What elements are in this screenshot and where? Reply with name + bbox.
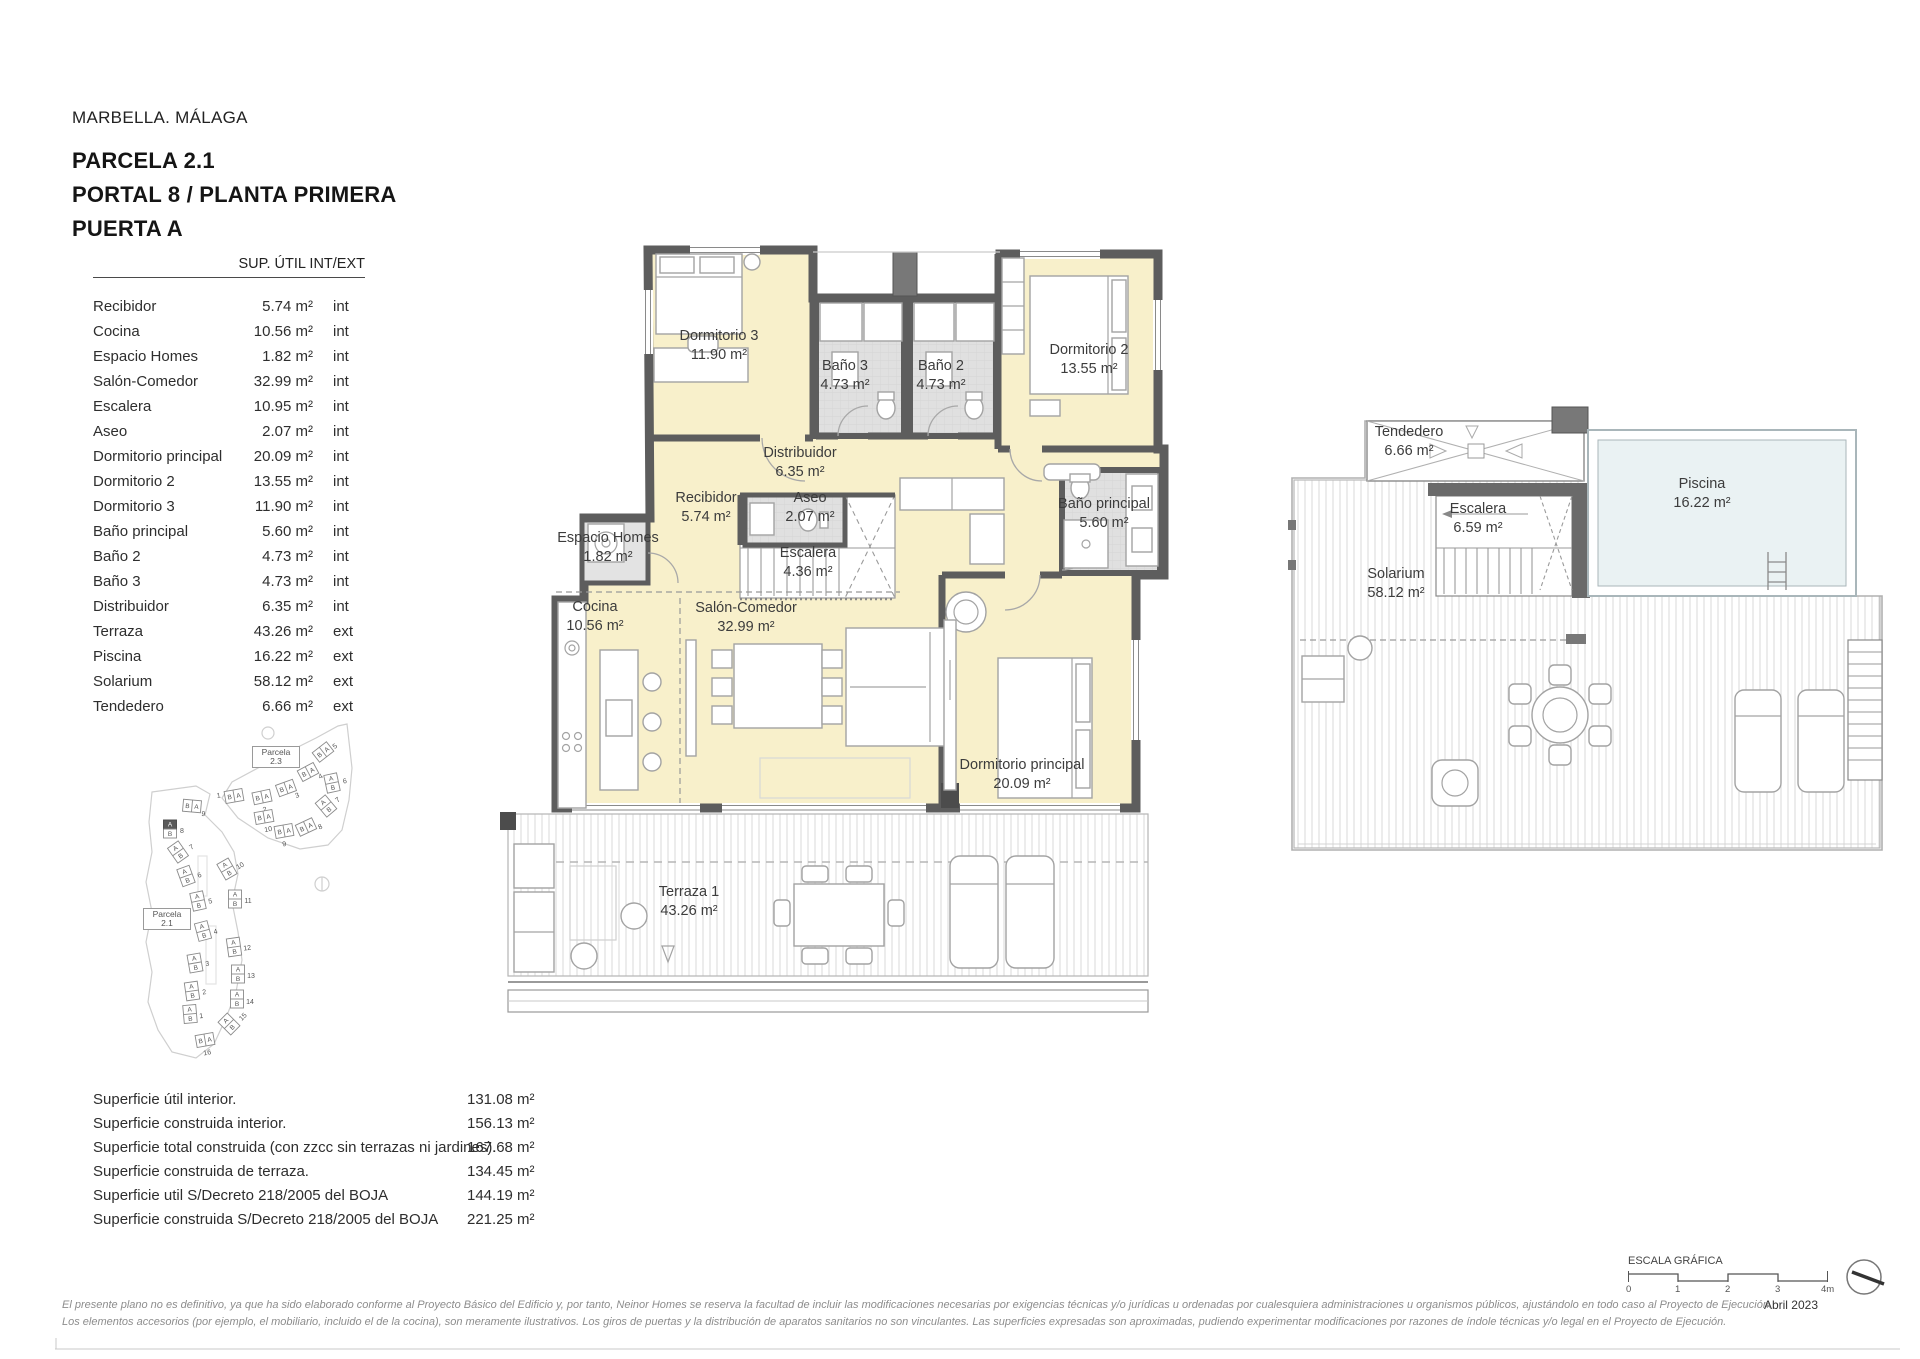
site-block: AB14 bbox=[231, 990, 254, 1008]
room-area: 20.09 m² bbox=[960, 775, 1085, 794]
svg-text:B: B bbox=[236, 976, 240, 983]
label-solarium: Solarium58.12 m² bbox=[1367, 565, 1424, 603]
room-area: 4.73 m² bbox=[916, 376, 965, 395]
site-block: AB6 bbox=[177, 862, 203, 886]
area-row: Solarium58.12 m²ext bbox=[93, 669, 365, 694]
side-steps bbox=[1848, 640, 1882, 780]
parcela-23-label: Parcela2.3 bbox=[252, 746, 300, 768]
svg-text:B: B bbox=[168, 831, 172, 838]
room-name: Baño 2 bbox=[916, 357, 965, 376]
svg-text:4: 4 bbox=[213, 928, 219, 936]
compass-icon bbox=[1847, 1260, 1884, 1294]
site-block: AB12 bbox=[226, 936, 252, 957]
svg-text:12: 12 bbox=[243, 945, 252, 953]
scale-tick: 1 bbox=[1675, 1284, 1680, 1295]
room-name: Piscina bbox=[1673, 475, 1730, 494]
area-row: Salón-Comedor32.99 m²int bbox=[93, 369, 365, 394]
room-name: Escalera bbox=[1450, 500, 1506, 519]
svg-text:2: 2 bbox=[202, 989, 207, 996]
area-row: Aseo2.07 m²int bbox=[93, 419, 365, 444]
room-area: 4.73 m² bbox=[820, 376, 869, 395]
site-plan-map: BA1 BA2 BA3 BA4 BA5 AB6 AB7 BA8 BA9 BA10… bbox=[146, 724, 352, 1058]
room-area: 43.26 m² bbox=[659, 902, 719, 921]
svg-text:A: A bbox=[235, 992, 240, 999]
site-block: AB13 bbox=[232, 965, 255, 983]
room-area: 4.36 m² bbox=[780, 563, 836, 582]
label-dormitorio2: Dormitorio 213.55 m² bbox=[1050, 341, 1129, 379]
svg-text:9: 9 bbox=[282, 841, 287, 849]
disclaimer-line1: El presente plano no es definitivo, ya q… bbox=[62, 1297, 1898, 1314]
scale-tick: 3 bbox=[1775, 1284, 1780, 1295]
svg-text:1: 1 bbox=[216, 792, 221, 800]
site-block: AB6 bbox=[324, 771, 349, 793]
room-name: Espacio Homes bbox=[557, 529, 659, 548]
area-row: Baño principal5.60 m²int bbox=[93, 519, 365, 544]
label-escalera: Escalera4.36 m² bbox=[780, 544, 836, 582]
room-name: Tendedero bbox=[1375, 423, 1444, 442]
summary-row: Superficie construida interior.156.13 m² bbox=[93, 1112, 535, 1136]
room-name: Solarium bbox=[1367, 565, 1424, 584]
room-area: 10.56 m² bbox=[566, 617, 623, 636]
room-name: Dormitorio principal bbox=[960, 756, 1085, 775]
svg-text:6: 6 bbox=[342, 778, 347, 786]
label-recibidor: Recibidor5.74 m² bbox=[675, 489, 736, 527]
room-area: 6.59 m² bbox=[1450, 519, 1506, 538]
upper-floor-plan bbox=[1288, 407, 1882, 850]
svg-text:9: 9 bbox=[201, 811, 206, 818]
room-area: 5.74 m² bbox=[675, 508, 736, 527]
portal-title: PORTAL 8 / PLANTA PRIMERA bbox=[72, 182, 396, 208]
site-block: BA9 bbox=[274, 824, 296, 850]
area-row: Baño 24.73 m²int bbox=[93, 544, 365, 569]
area-row: Tendedero6.66 m²ext bbox=[93, 694, 365, 719]
area-table-header: SUP. ÚTIL INT/EXT bbox=[93, 256, 365, 278]
area-row: Terraza43.26 m²ext bbox=[93, 619, 365, 644]
svg-text:10: 10 bbox=[235, 861, 245, 871]
vent-shaft bbox=[893, 252, 917, 296]
svg-text:B: B bbox=[233, 901, 237, 908]
room-area: 6.35 m² bbox=[763, 463, 836, 482]
pillar bbox=[1288, 520, 1296, 530]
label-escalera-upper: Escalera6.59 m² bbox=[1450, 500, 1506, 538]
label-aseo: Aseo2.07 m² bbox=[785, 489, 834, 527]
label-salon: Salón-Comedor32.99 m² bbox=[695, 599, 797, 637]
room-name: Baño principal bbox=[1058, 495, 1150, 514]
site-block: AB3 bbox=[187, 952, 210, 973]
scale-bar-graphic: 0 1 2 3 4m bbox=[1628, 1270, 1832, 1284]
scale-title: ESCALA GRÁFICA bbox=[1628, 1255, 1832, 1267]
room-name: Baño 3 bbox=[820, 357, 869, 376]
room-area: 58.12 m² bbox=[1367, 584, 1424, 603]
svg-text:1: 1 bbox=[199, 1013, 204, 1020]
room-area: 11.90 m² bbox=[680, 346, 759, 365]
label-dormitorio3: Dormitorio 311.90 m² bbox=[680, 327, 759, 365]
svg-text:B: B bbox=[185, 803, 190, 810]
site-block: BA1 bbox=[216, 789, 244, 805]
svg-text:11: 11 bbox=[244, 898, 251, 905]
summary-row: Superficie útil interior.131.08 m² bbox=[93, 1088, 535, 1112]
label-terraza: Terraza 143.26 m² bbox=[659, 883, 719, 921]
room-area: 32.99 m² bbox=[695, 618, 797, 637]
area-row: Escalera10.95 m²int bbox=[93, 394, 365, 419]
site-block: AB7 bbox=[315, 789, 343, 817]
area-row: Cocina10.56 m²int bbox=[93, 319, 365, 344]
svg-text:5: 5 bbox=[208, 898, 213, 906]
area-row: Recibidor5.74 m²int bbox=[93, 294, 365, 319]
svg-text:4: 4 bbox=[318, 773, 325, 781]
label-cocina: Cocina10.56 m² bbox=[566, 598, 623, 636]
floorplan-sheet: BA1 BA2 BA3 BA4 BA5 AB6 AB7 BA8 BA9 BA10… bbox=[0, 0, 1920, 1359]
site-block: AB1 bbox=[183, 1004, 204, 1024]
site-block: AB2 bbox=[184, 980, 207, 1001]
label-bano3: Baño 34.73 m² bbox=[820, 357, 869, 395]
pool bbox=[1588, 430, 1856, 596]
room-area: 2.07 m² bbox=[785, 508, 834, 527]
summary-row: Superficie util S/Decreto 218/2005 del B… bbox=[93, 1184, 535, 1208]
room-name: Distribuidor bbox=[763, 444, 836, 463]
svg-text:B: B bbox=[235, 1001, 239, 1008]
surface-summary: Superficie útil interior.131.08 m² Super… bbox=[93, 1088, 535, 1232]
svg-text:A: A bbox=[168, 822, 173, 829]
pillar bbox=[1288, 560, 1296, 570]
site-block: AB7 bbox=[168, 835, 197, 863]
area-row: Dormitorio principal20.09 m²int bbox=[93, 444, 365, 469]
scale-tick: 4m bbox=[1821, 1284, 1834, 1295]
svg-text:7: 7 bbox=[334, 796, 342, 804]
label-dormitorio-principal: Dormitorio principal20.09 m² bbox=[960, 756, 1085, 794]
label-tendedero: Tendedero6.66 m² bbox=[1375, 423, 1444, 461]
room-area: 13.55 m² bbox=[1050, 360, 1129, 379]
svg-text:3: 3 bbox=[205, 961, 210, 969]
label-piscina: Piscina16.22 m² bbox=[1673, 475, 1730, 513]
area-row: Baño 34.73 m²int bbox=[93, 569, 365, 594]
summary-row: Superficie construida de terraza.134.45 … bbox=[93, 1160, 535, 1184]
area-row: Dormitorio 311.90 m²int bbox=[93, 494, 365, 519]
site-block: BA8 bbox=[295, 815, 324, 840]
svg-text:16: 16 bbox=[203, 1049, 212, 1057]
site-block: BA4 bbox=[297, 762, 324, 789]
room-name: Dormitorio 3 bbox=[680, 327, 759, 346]
area-row: Distribuidor6.35 m²int bbox=[93, 594, 365, 619]
svg-text:A: A bbox=[233, 892, 238, 899]
room-name: Escalera bbox=[780, 544, 836, 563]
pillar bbox=[500, 812, 516, 830]
room-name: Salón-Comedor bbox=[695, 599, 797, 618]
room-name: Terraza 1 bbox=[659, 883, 719, 902]
scale-tick: 0 bbox=[1626, 1284, 1631, 1295]
site-block: BA9 bbox=[182, 799, 206, 818]
site-block: AB4 bbox=[194, 919, 219, 942]
area-row: Piscina16.22 m²ext bbox=[93, 644, 365, 669]
site-block-highlighted: AB8 bbox=[164, 820, 185, 838]
svg-text:7: 7 bbox=[188, 844, 195, 852]
room-name: Aseo bbox=[785, 489, 834, 508]
room-name: Cocina bbox=[566, 598, 623, 617]
svg-text:A: A bbox=[236, 967, 241, 974]
site-block: AB10 bbox=[217, 853, 246, 880]
site-block: AB5 bbox=[190, 889, 214, 911]
area-table: SUP. ÚTIL INT/EXT Recibidor5.74 m²int Co… bbox=[93, 256, 365, 719]
label-espacio-homes: Espacio Homes1.82 m² bbox=[557, 529, 659, 567]
site-block: AB11 bbox=[229, 890, 252, 908]
svg-text:14: 14 bbox=[246, 999, 254, 1006]
site-block: BA3 bbox=[275, 779, 300, 805]
svg-text:8: 8 bbox=[180, 828, 184, 835]
area-row: Espacio Homes1.82 m²int bbox=[93, 344, 365, 369]
room-area: 1.82 m² bbox=[557, 548, 659, 567]
site-block: BA5 bbox=[312, 738, 339, 763]
svg-text:13: 13 bbox=[247, 973, 255, 980]
area-row: Dormitorio 213.55 m²int bbox=[93, 469, 365, 494]
svg-text:B: B bbox=[188, 1016, 193, 1023]
disclaimer-line2: Los elementos accesorios (por ejemplo, e… bbox=[62, 1314, 1898, 1331]
parcela-21-label: Parcela2.1 bbox=[143, 908, 191, 930]
summary-row: Superficie total construida (con zzcc si… bbox=[93, 1136, 535, 1160]
label-bano2: Baño 24.73 m² bbox=[916, 357, 965, 395]
disclaimer: El presente plano no es definitivo, ya q… bbox=[62, 1297, 1898, 1330]
label-distribuidor: Distribuidor6.35 m² bbox=[763, 444, 836, 482]
site-block: AB15 bbox=[218, 1004, 249, 1035]
location-title: MARBELLA. MÁLAGA bbox=[72, 108, 248, 128]
site-block: BA16 bbox=[195, 1033, 217, 1059]
room-area: 16.22 m² bbox=[1673, 494, 1730, 513]
parcela-title: PARCELA 2.1 bbox=[72, 148, 215, 174]
svg-text:15: 15 bbox=[238, 1012, 249, 1023]
summary-row: Superficie construida S/Decreto 218/2005… bbox=[93, 1208, 535, 1232]
svg-text:6: 6 bbox=[197, 872, 203, 880]
svg-text:3: 3 bbox=[294, 792, 300, 800]
svg-text:10: 10 bbox=[264, 826, 273, 834]
puerta-title: PUERTA A bbox=[72, 216, 183, 242]
room-name: Dormitorio 2 bbox=[1050, 341, 1129, 360]
room-area: 5.60 m² bbox=[1058, 514, 1150, 533]
room-area: 6.66 m² bbox=[1375, 442, 1444, 461]
room-name: Recibidor bbox=[675, 489, 736, 508]
label-bano-principal: Baño principal5.60 m² bbox=[1058, 495, 1150, 533]
scale-tick: 2 bbox=[1725, 1284, 1730, 1295]
svg-text:8: 8 bbox=[317, 823, 324, 831]
